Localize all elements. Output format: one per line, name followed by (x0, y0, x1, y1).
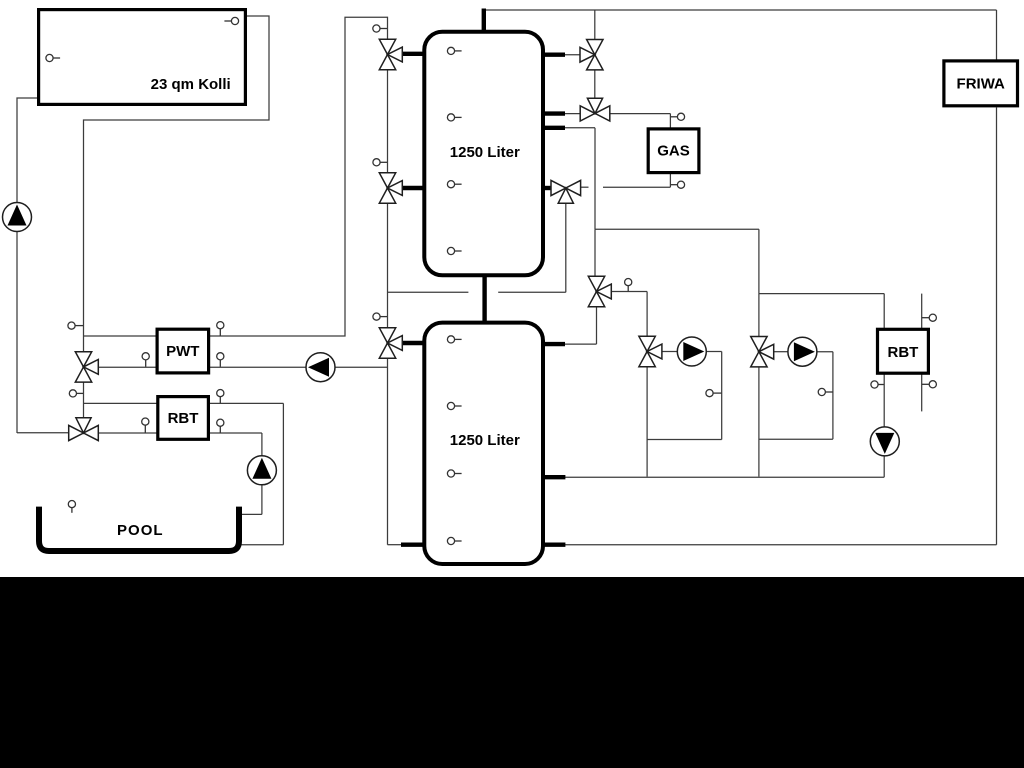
svg-text:1250 Liter: 1250 Liter (450, 144, 520, 161)
svg-text:GAS: GAS (657, 143, 690, 160)
svg-text:23 qm Kolli: 23 qm Kolli (151, 76, 231, 93)
svg-text:1250 Liter: 1250 Liter (450, 432, 520, 449)
svg-text:RBT: RBT (887, 344, 918, 361)
svg-text:FRIWA: FRIWA (957, 75, 1005, 92)
svg-text:PWT: PWT (166, 343, 199, 360)
svg-text:POOL: POOL (117, 522, 164, 539)
svg-text:RBT: RBT (168, 410, 199, 427)
